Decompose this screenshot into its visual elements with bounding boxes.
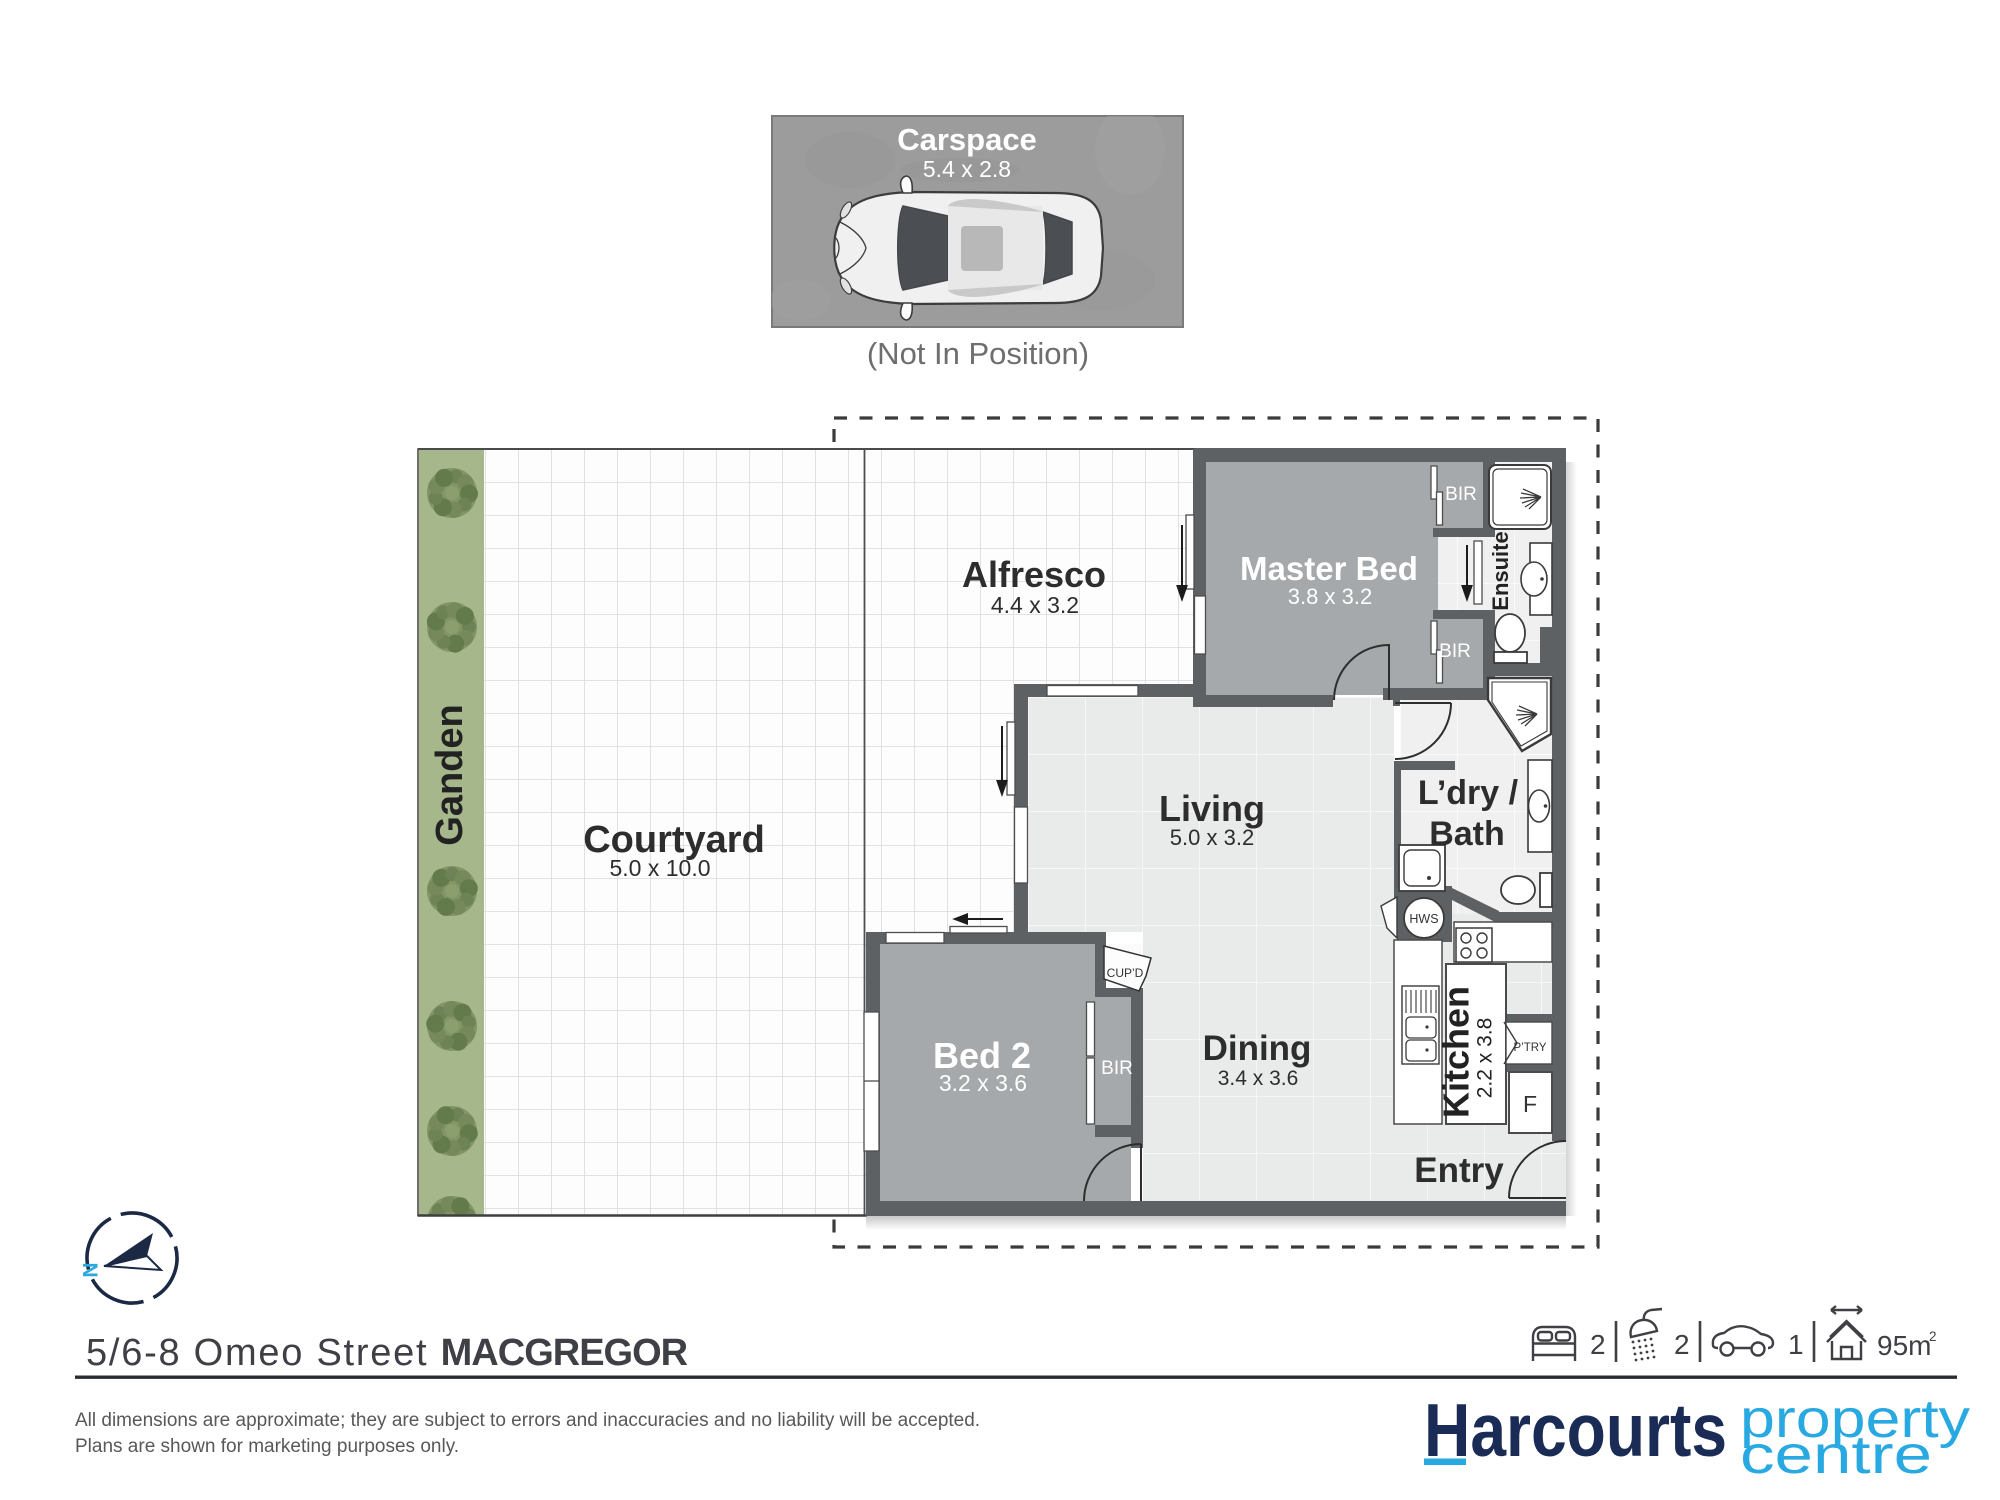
svg-text:2.2 x 3.8: 2.2 x 3.8 [1474, 1018, 1497, 1099]
svg-text:N: N [80, 1262, 103, 1277]
svg-text:3.4 x 3.6: 3.4 x 3.6 [1218, 1067, 1299, 1090]
svg-text:5.4 x 2.8: 5.4 x 2.8 [923, 156, 1011, 182]
svg-text:Entry: Entry [1414, 1151, 1504, 1190]
svg-text:95m: 95m [1877, 1330, 1931, 1361]
svg-text:BIR: BIR [1101, 1058, 1133, 1079]
svg-text:4.4 x 3.2: 4.4 x 3.2 [991, 592, 1079, 618]
svg-text:5/6-8 Omeo Street MACGREGOR: 5/6-8 Omeo Street MACGREGOR [86, 1332, 688, 1374]
svg-text:Kitchen: Kitchen [1436, 986, 1477, 1118]
svg-text:5.0 x 10.0: 5.0 x 10.0 [609, 855, 710, 881]
svg-text:CUP’D: CUP’D [1107, 966, 1144, 980]
svg-text:Carspace: Carspace [897, 122, 1037, 157]
svg-text:5.0 x 3.2: 5.0 x 3.2 [1170, 825, 1254, 850]
svg-text:Ganden: Ganden [429, 704, 471, 845]
svg-text:2: 2 [1590, 1329, 1606, 1360]
svg-text:Living: Living [1159, 788, 1265, 829]
svg-text:Plans are shown for marketing: Plans are shown for marketing purposes o… [75, 1436, 459, 1457]
svg-text:Harcourts: Harcourts [1424, 1388, 1727, 1472]
svg-text:All dimensions are approximate: All dimensions are approximate; they are… [75, 1410, 980, 1431]
svg-text:3.8 x 3.2: 3.8 x 3.2 [1288, 584, 1372, 609]
svg-text:Master Bed: Master Bed [1240, 550, 1418, 587]
svg-text:BIR: BIR [1439, 641, 1471, 662]
svg-text:Bath: Bath [1429, 815, 1505, 853]
svg-text:HWS: HWS [1409, 912, 1438, 926]
svg-text:(Not In Position): (Not In Position) [867, 336, 1089, 371]
svg-text:F: F [1523, 1091, 1537, 1117]
svg-text:L’dry /: L’dry / [1418, 774, 1519, 812]
svg-text:1: 1 [1788, 1329, 1804, 1360]
svg-text:Dining: Dining [1203, 1029, 1312, 1068]
svg-text:BIR: BIR [1445, 484, 1477, 505]
svg-text:Ensuite: Ensuite [1488, 531, 1513, 610]
svg-text:2: 2 [1674, 1329, 1690, 1360]
svg-text:centre: centre [1740, 1425, 1932, 1485]
svg-text:3.2 x 3.6: 3.2 x 3.6 [939, 1070, 1027, 1096]
svg-text:2: 2 [1929, 1329, 1937, 1344]
svg-text:P’TRY: P’TRY [1513, 1042, 1546, 1054]
svg-text:Alfresco: Alfresco [962, 554, 1106, 595]
